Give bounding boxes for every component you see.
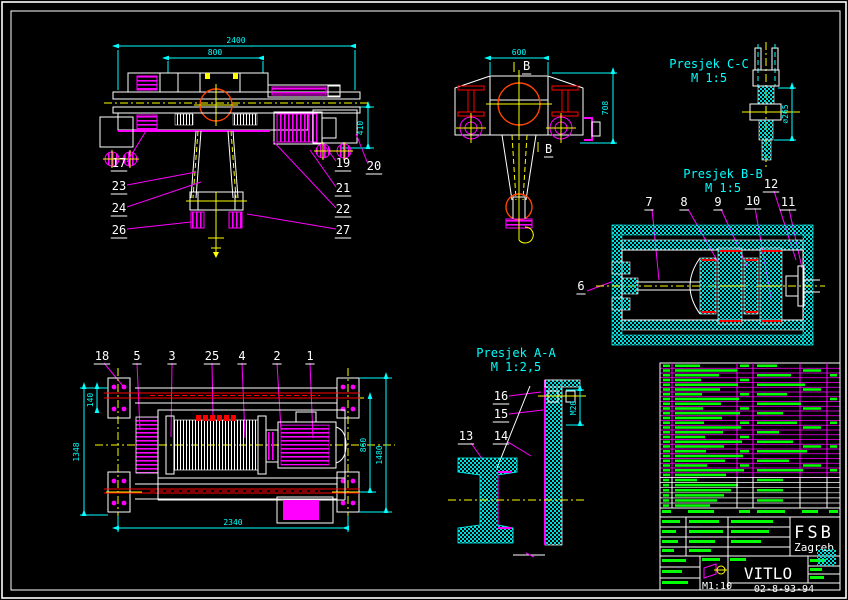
callout-26: 26 [112,223,126,237]
bom-desc-bar [675,445,724,448]
drawing-canvas: 2400 800 410 17 2 [0,0,848,600]
drum-grooves [175,114,193,125]
bom-ref-bar [757,393,787,396]
callout-18: 18 [95,349,109,363]
bom-ref-bar [757,422,797,425]
bom-pos-bar [663,450,670,453]
callout-21: 21 [336,181,350,195]
drawing-scale: M1:10 [702,581,732,592]
extra-pos-bar [663,479,669,482]
motor-lower-body [277,114,317,142]
dim-plan-h3: 860 [359,438,368,453]
bom-ref-bar [757,412,783,415]
callout-27: 27 [336,223,350,237]
callout-17: 17 [112,156,126,170]
plate-top-flange [545,380,580,387]
bom-pos-bar [663,403,670,406]
bom-qty-bar [740,407,749,410]
callout-2: 2 [273,349,280,363]
bom-mass-bar [830,445,837,448]
callout-25: 25 [205,349,219,363]
bom-norm-bar [803,464,821,467]
bolt-mark [205,73,210,79]
rope-drum [174,420,258,470]
bom-desc-bar [675,365,700,368]
bom-pos-bar [663,445,670,448]
dim-plan-h2: 140 [86,393,95,408]
extra-pos-bar [663,504,669,507]
hub-upper [612,262,630,274]
section-mark-b-top: B [523,59,530,73]
extra-pos-bar [663,489,669,492]
section-mark-b-bottom: B [545,142,552,156]
bom-ref-bar [757,384,805,387]
bom-mass-bar [830,469,837,472]
gear-train [700,248,782,324]
bom-ref-bar [757,431,779,434]
callout-11: 11 [781,195,795,209]
gearbox-wall-bottom [612,335,813,345]
gearbox-wall-top [612,225,813,235]
bom-pos-bar [663,398,670,401]
dim-plan-h4: 1480 [375,445,384,464]
part-name: VITLO [744,564,792,583]
bom-desc-bar [675,426,741,429]
callout-16: 16 [494,389,508,403]
section-bb-title: Presjek B-B [683,167,762,181]
bom-mass-bar [830,398,837,401]
bom-pos-bar [663,426,670,429]
bolt-mark [233,73,238,79]
bom-pos-bar [663,422,670,425]
callout-20: 20 [367,159,381,173]
cad-sheet: 2400 800 410 17 2 [0,0,848,600]
sheave-hatch [191,212,204,228]
bom-mass-bar [830,422,837,425]
callout-19: 19 [336,156,350,170]
extra-desc-bar [675,494,724,497]
bom-pos-bar [663,464,670,467]
bom-desc-bar [675,379,701,382]
bom-pos-bar [663,460,670,463]
bom-pos-bar [663,384,670,387]
company-logo: FSB [794,523,834,543]
bom-desc-bar [675,412,740,415]
bom-desc-bar [675,388,720,391]
bom-desc-bar [675,407,703,410]
callout-6: 6 [577,279,584,293]
limit-switch-body [283,500,319,520]
shaft-hatch-3 [762,140,771,160]
bom-ref-bar [757,403,801,406]
bom-ref-bar [757,469,803,472]
callout-5: 5 [133,349,140,363]
bom-pos-bar [663,374,670,377]
bom-desc-bar [675,450,706,453]
callout-22: 22 [336,202,350,216]
extra-desc-bar [675,499,717,502]
bom-norm-bar [803,426,821,429]
brake-block [137,76,157,90]
section-aa-scale: M 1:2,5 [491,360,542,374]
bom-pos-bar [663,388,670,391]
extra-ref-bar [757,479,783,482]
bom-desc-bar [675,384,738,387]
extra-pos-bar [663,499,669,502]
bom-desc-bar [675,474,726,477]
brake-unit [136,417,158,473]
bom-norm-bar [803,369,821,372]
extra-desc-bar [675,484,738,487]
plan-motor-body [281,425,329,465]
dim-front-total: 2400 [226,36,245,45]
dim-end-width: 600 [512,48,527,57]
drum-grooves [233,114,257,125]
bom-pos-bar [663,417,670,420]
extra-ref-bar [757,489,783,492]
dim-plan-h1: 1348 [72,442,81,461]
bom-desc-bar [675,431,723,434]
extra-pos-bar [663,484,669,487]
bom-norm-bar [803,407,821,410]
bom-ref-bar [757,441,793,444]
callout-13: 13 [459,429,473,443]
bom-ref-bar [757,365,777,368]
bom-desc-bar [675,422,704,425]
callout-7: 7 [645,195,652,209]
bom-desc-bar [675,393,702,396]
callout-23: 23 [112,179,126,193]
bom-desc-bar [675,398,739,401]
bom-qty-bar [740,450,749,453]
callout-24: 24 [112,201,126,215]
callout-15: 15 [494,407,508,421]
bom-pos-bar [663,436,670,439]
section-bb-scale: M 1:5 [705,181,741,195]
extra-pos-bar [663,494,669,497]
bom-qty-bar [740,464,749,467]
callout-4: 4 [238,349,245,363]
bom-norm-bar [803,445,821,448]
bom-ref-bar [757,460,789,463]
bom-desc-bar [675,436,705,439]
dim-end-height: 708 [601,101,610,116]
shaft-bearing [622,278,638,294]
bom-pos-bar [663,455,670,458]
section-cc-scale: M 1:5 [691,71,727,85]
bom-desc-bar [675,441,742,444]
extra-desc-bar [675,504,710,507]
callout-1: 1 [306,349,313,363]
callout-10: 10 [746,194,760,208]
bom-qty-bar [740,393,749,396]
callout-9: 9 [714,195,721,209]
revision-hatch-patch [817,549,836,566]
shaft-hatch [758,86,774,104]
hub-lower [612,298,630,310]
bom-desc-bar [675,403,721,406]
bom-ref-bar [757,450,807,453]
bom-desc-bar [675,374,719,377]
dim-aa-bolt: M20 [569,401,578,416]
bom-desc-bar [675,369,737,372]
drawing-number: 02-8-93-94 [754,584,814,595]
section-aa-title: Presjek A-A [476,346,556,360]
bom-pos-bar [663,407,670,410]
bom-desc-bar [675,460,725,463]
bom-qty-bar [740,365,749,368]
bom-qty-bar [740,436,749,439]
dim-plan-total: 2340 [223,518,242,527]
dim-cc-dia: ⌀265 [781,104,790,123]
bom-pos-bar [663,393,670,396]
extra-desc-bar [675,479,697,482]
callout-12: 12 [764,177,778,191]
bom-ref-bar [757,374,791,377]
bom-pos-bar [663,412,670,415]
dim-front-drum: 800 [208,48,223,57]
bom-pos-bar [663,474,670,477]
bom-pos-bar [663,369,670,372]
bom-desc-bar [675,417,722,420]
bom-pos-bar [663,379,670,382]
callout-8: 8 [680,195,687,209]
shaft-hatch-2 [759,120,773,140]
bom-qty-bar [740,379,749,382]
gearbox-wall-left [612,225,622,345]
sheave-hatch [229,212,242,228]
extra-desc-bar [675,489,731,492]
callout-3: 3 [168,349,175,363]
bom-pos-bar [663,365,670,368]
bom-pos-bar [663,431,670,434]
bom-desc-bar [675,469,744,472]
bom-norm-bar [803,388,821,391]
bom-qty-bar [740,422,749,425]
motor-top-body [272,87,326,95]
extra-ref-bar [757,499,783,502]
coupling-hatch [268,432,276,460]
bom-desc-bar [675,464,707,467]
frame-plate-section [545,380,562,545]
bom-desc-bar [675,455,743,458]
section-cc-title: Presjek C-C [669,57,748,71]
bom-header-labels [662,510,838,513]
brake-block-2 [137,115,157,130]
bom-pos-bar [663,469,670,472]
bom-pos-bar [663,441,670,444]
bom-mass-bar [830,374,837,377]
callout-14: 14 [494,429,508,443]
